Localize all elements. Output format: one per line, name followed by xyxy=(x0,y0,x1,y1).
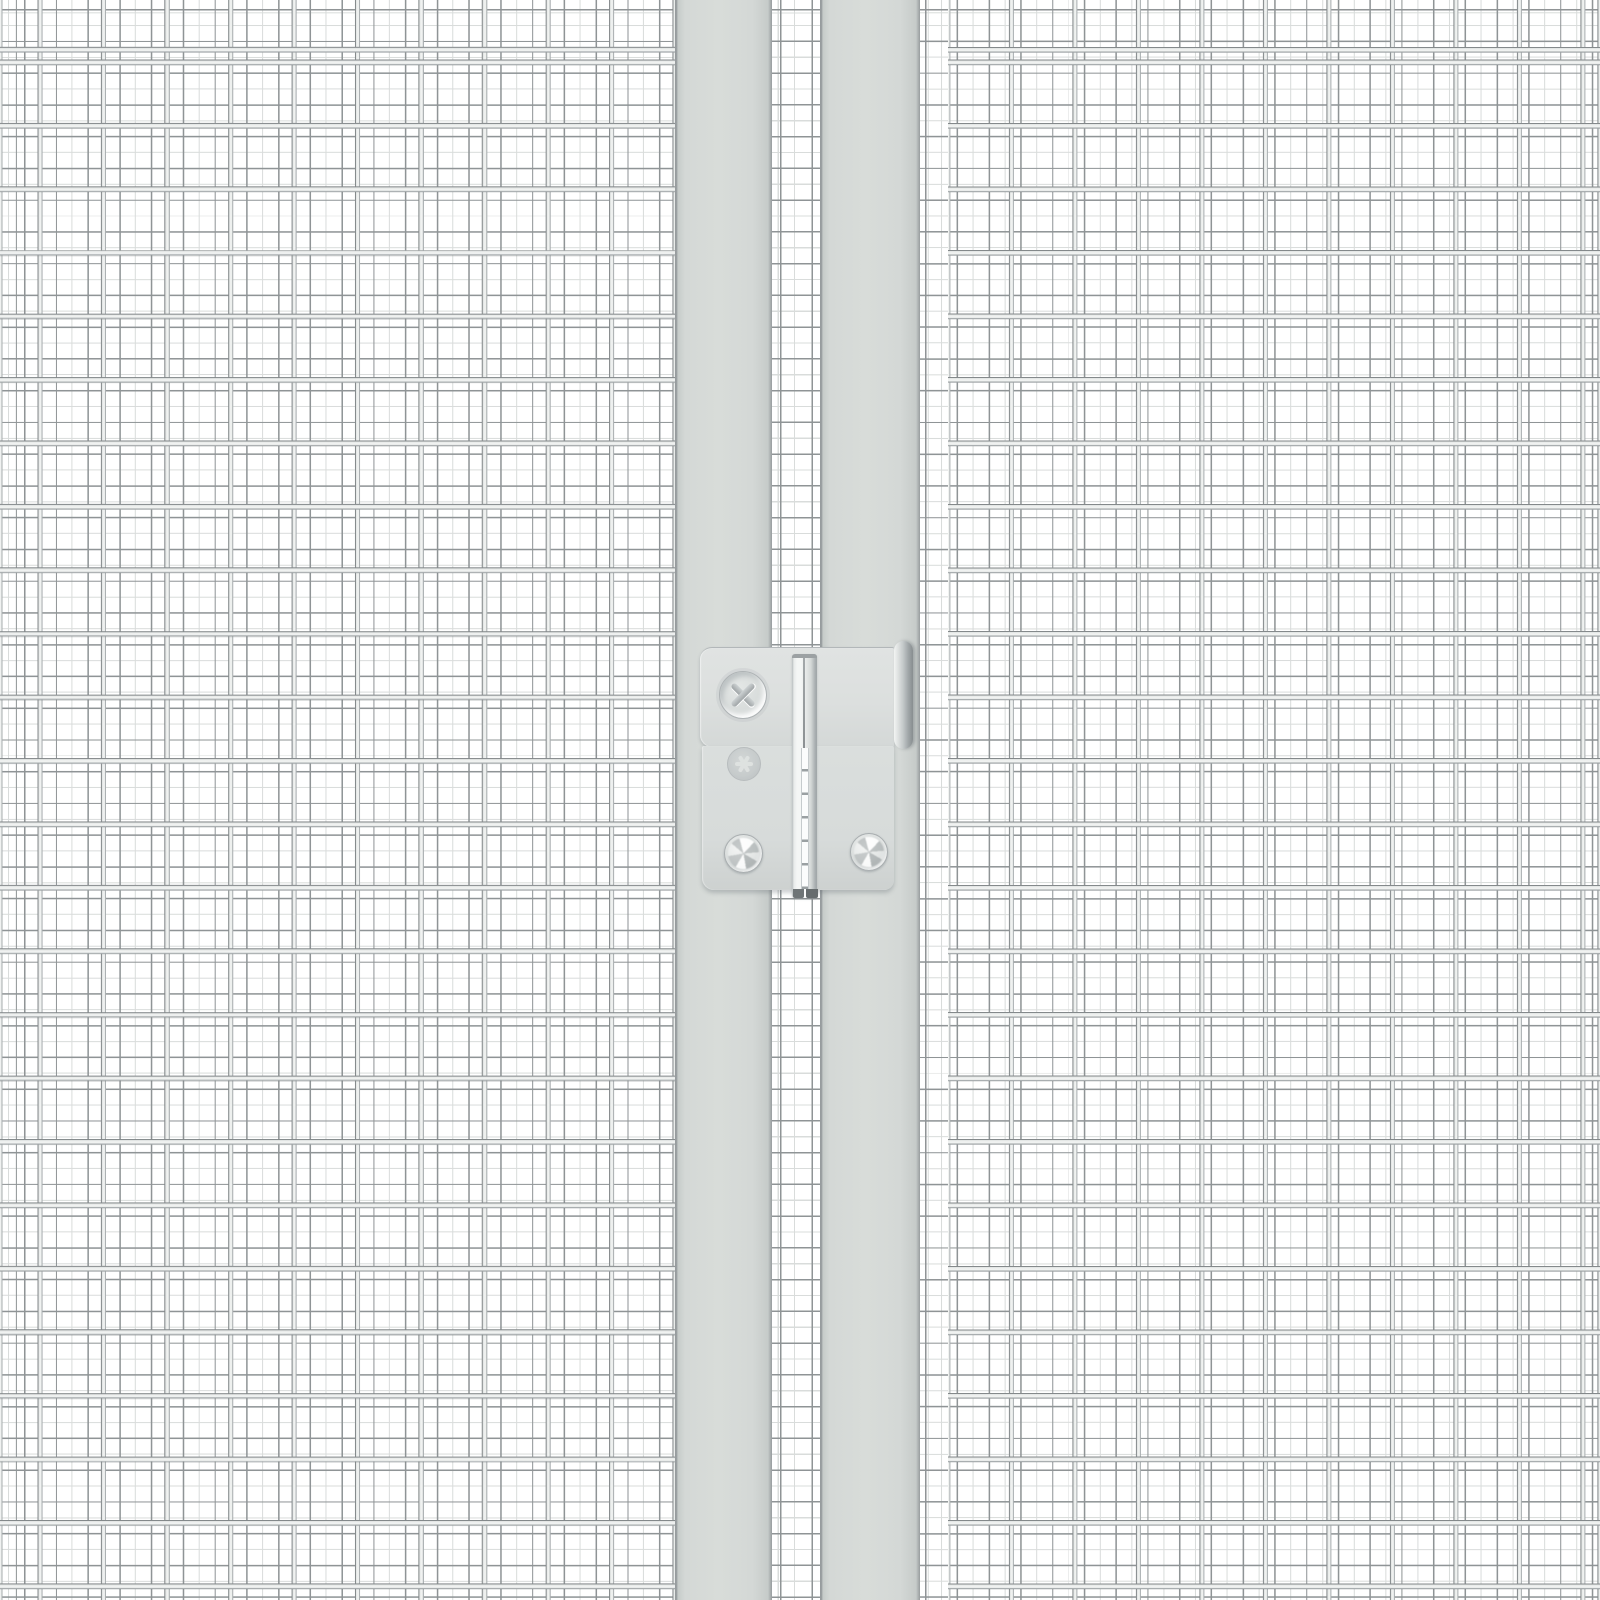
hinge-barrel xyxy=(894,641,913,749)
screw-facets xyxy=(728,838,759,869)
screw-bottom-right xyxy=(850,833,888,871)
screw-facets xyxy=(854,837,884,867)
recessed-screw xyxy=(727,747,761,781)
hinge-knuckle-seam xyxy=(801,748,809,898)
hinge-pin-foot-right xyxy=(806,889,818,898)
phillips-screw xyxy=(719,671,767,719)
hinge-assembly xyxy=(0,0,1600,1600)
hinge-pin xyxy=(792,654,817,898)
hinge-pin-seam xyxy=(803,658,805,750)
screw-bottom-left xyxy=(724,834,763,873)
mesh-partition-photo xyxy=(0,0,1600,1600)
hinge-pin-foot-left xyxy=(793,889,804,898)
